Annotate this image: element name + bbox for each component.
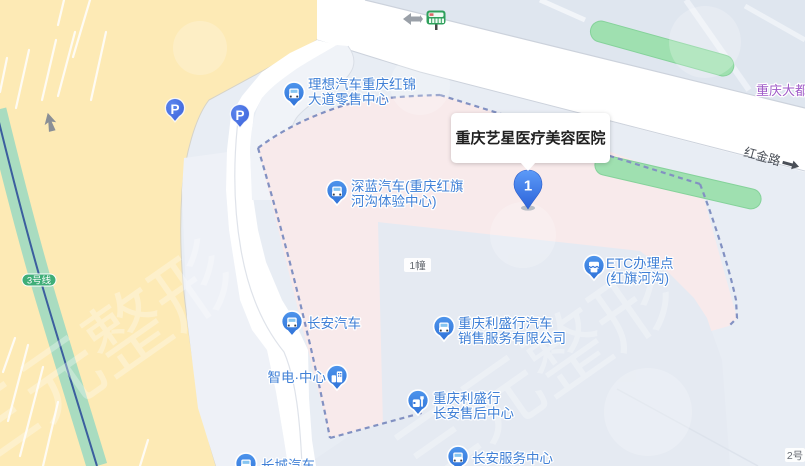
svg-text:重庆艺星医疗美容医院: 重庆艺星医疗美容医院 [455, 129, 605, 147]
svg-text:长安汽车: 长安汽车 [307, 315, 361, 331]
svg-text:1: 1 [524, 178, 532, 195]
svg-text:长城汽车: 长城汽车 [261, 457, 315, 466]
svg-text:重庆大都会: 重庆大都会 [756, 83, 805, 98]
svg-text:大道零售中心: 大道零售中心 [308, 92, 389, 107]
svg-text:长安服务中心: 长安服务中心 [472, 451, 553, 466]
svg-text:河沟体验中心): 河沟体验中心) [351, 194, 437, 209]
svg-text:(红旗河沟): (红旗河沟) [606, 271, 669, 286]
svg-text:P: P [170, 102, 179, 117]
svg-text:销售服务有限公司: 销售服务有限公司 [458, 331, 566, 346]
svg-text:P: P [235, 108, 244, 123]
svg-text:ETC办理点: ETC办理点 [606, 256, 674, 271]
svg-text:3号线: 3号线 [27, 275, 52, 287]
svg-text:长安售后中心: 长安售后中心 [433, 406, 514, 421]
svg-text:1幢: 1幢 [409, 259, 426, 272]
svg-text:重庆利盛行汽车: 重庆利盛行汽车 [458, 315, 553, 331]
svg-text:智电·中心: 智电·中心 [268, 370, 327, 385]
svg-text:重庆利盛行: 重庆利盛行 [433, 391, 501, 406]
svg-text:理想汽车重庆红锦: 理想汽车重庆红锦 [308, 76, 416, 92]
svg-text:深蓝汽车(重庆红旗: 深蓝汽车(重庆红旗 [351, 178, 464, 194]
svg-text:2号: 2号 [787, 450, 803, 462]
